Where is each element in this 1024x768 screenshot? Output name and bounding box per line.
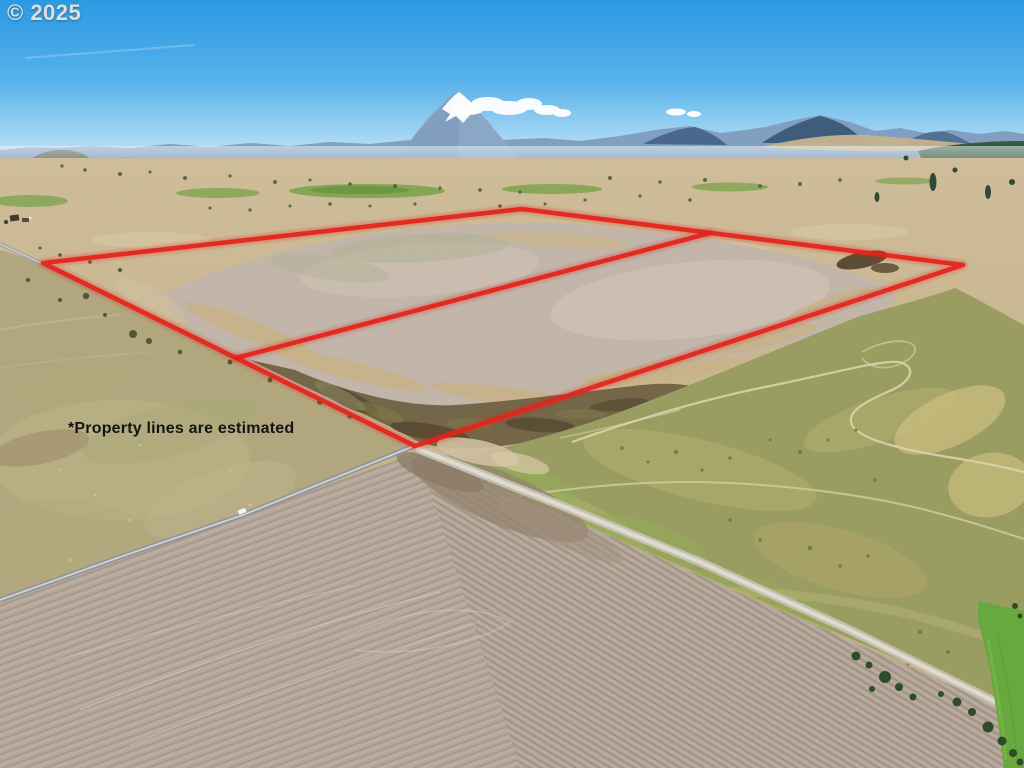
aerial-property-photo: © 2025 *Property lines are estimated xyxy=(0,0,1024,768)
copyright-watermark: © 2025 xyxy=(7,0,81,26)
grain-texture xyxy=(0,150,1024,768)
disclaimer-text: *Property lines are estimated xyxy=(68,420,294,438)
scene xyxy=(0,0,1024,768)
